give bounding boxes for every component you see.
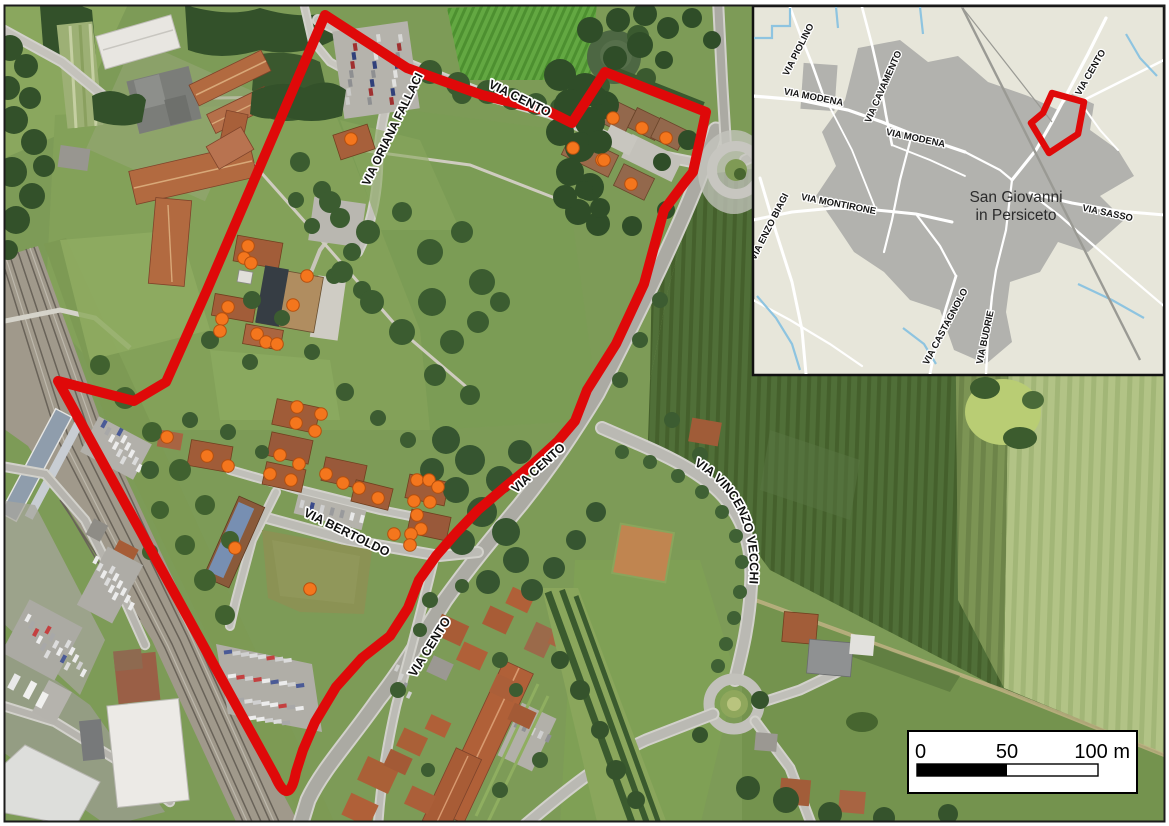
svg-text:San Giovanni: San Giovanni (969, 189, 1062, 206)
svg-text:50: 50 (996, 741, 1018, 763)
svg-text:0: 0 (915, 741, 926, 763)
svg-text:100 m: 100 m (1074, 741, 1130, 763)
svg-text:in Persiceto: in Persiceto (976, 207, 1057, 224)
